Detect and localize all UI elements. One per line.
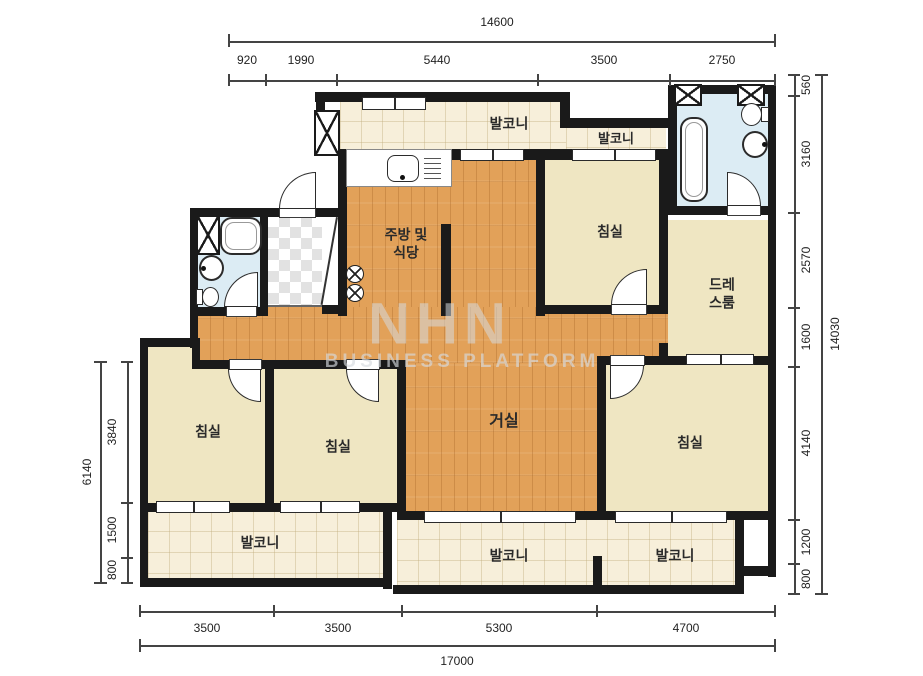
wall — [441, 224, 451, 316]
duct-x-icon — [674, 84, 702, 106]
dressroom-line2: 스룸 — [709, 294, 735, 312]
wall — [272, 360, 347, 369]
entrance-floor — [268, 216, 322, 306]
room-label-balcony-bottom-left: 발코니 — [241, 534, 280, 552]
wall — [768, 85, 776, 577]
room-label-balcony-top-right: 발코니 — [598, 131, 634, 147]
dim-right-seg: 3160 — [799, 141, 813, 168]
dim-bottom-seg: 3500 — [194, 621, 221, 635]
kitchen-line2: 식당 — [385, 244, 428, 262]
wall — [597, 356, 606, 520]
dim-top-seg: 2750 — [709, 53, 736, 67]
kitchen-line1: 주방 및 — [385, 227, 428, 245]
dim-left-total: 6140 — [80, 459, 94, 486]
wall — [735, 520, 744, 594]
dim-top-seg: 5440 — [424, 53, 451, 67]
wall — [646, 305, 668, 314]
room-label-balcony-bottom-mid: 발코니 — [490, 547, 529, 565]
wall — [140, 578, 390, 587]
wall — [200, 360, 231, 369]
toilet-icon — [741, 103, 762, 126]
window — [156, 501, 230, 513]
washbasin-faucet — [201, 266, 206, 271]
dim-left-seg: 3840 — [105, 419, 119, 446]
dimension-line — [794, 75, 796, 594]
wall — [315, 208, 342, 217]
room-label-bedroom-mid: 침실 — [325, 438, 351, 456]
entrance-door-arc — [279, 172, 316, 209]
dim-bottom-seg: 5300 — [486, 621, 513, 635]
dim-right-seg: 800 — [799, 569, 813, 589]
room-label-dressroom: 드레 스룸 — [709, 277, 735, 312]
gas-range-icon — [346, 284, 364, 302]
dim-right-seg: 4140 — [799, 430, 813, 457]
wall — [393, 585, 743, 594]
wall — [192, 338, 200, 369]
dimension-line — [100, 362, 102, 583]
dim-left-seg: 1500 — [105, 517, 119, 544]
window — [424, 511, 576, 523]
dim-bottom-seg: 4700 — [673, 621, 700, 635]
window — [280, 501, 360, 513]
wall — [536, 305, 612, 314]
dim-top-seg: 1990 — [288, 53, 315, 67]
window — [615, 511, 727, 523]
wall — [737, 566, 776, 576]
dim-left-seg: 800 — [105, 560, 119, 580]
wall — [536, 149, 545, 316]
dim-right-seg: 2570 — [799, 247, 813, 274]
wall — [659, 149, 668, 312]
door-threshold — [226, 306, 257, 317]
wall — [322, 305, 342, 314]
wall — [193, 307, 227, 316]
room-label-bedroom-left: 침실 — [195, 423, 221, 441]
dimension-line — [140, 611, 775, 613]
wall — [397, 360, 406, 520]
dim-right-seg: 1600 — [799, 324, 813, 351]
dim-bottom-seg: 3500 — [325, 621, 352, 635]
wall — [265, 360, 274, 512]
dimension-line — [127, 362, 129, 583]
dim-top-total: 14600 — [480, 15, 513, 29]
wall — [140, 338, 148, 587]
window — [460, 149, 524, 161]
dim-bottom-total: 17000 — [440, 654, 473, 668]
dish-rack-icon — [424, 158, 441, 179]
wall — [256, 307, 268, 316]
room-label-bedroom-right: 침실 — [677, 434, 703, 452]
dimension-line — [229, 41, 775, 43]
duct-x-icon — [196, 215, 220, 255]
gas-range-icon — [346, 265, 364, 283]
window — [686, 354, 754, 365]
room-label-bedroom-top: 침실 — [597, 223, 623, 241]
floor-plan: 발코니 발코니 침실 드레 스룸 주방 및 식당 거실 침실 침실 침실 발코니… — [0, 0, 923, 676]
door-threshold — [727, 205, 761, 216]
dimension-line — [140, 645, 775, 647]
room-label-living: 거실 — [489, 412, 518, 432]
wall — [593, 556, 602, 594]
wall — [140, 338, 200, 347]
dimension-line — [821, 75, 823, 594]
toilet-icon — [202, 287, 219, 307]
door-threshold — [611, 304, 647, 315]
dim-top-seg: 920 — [237, 53, 257, 67]
living-room-floor — [402, 363, 605, 520]
bathtub-icon — [220, 217, 262, 255]
wall — [760, 206, 776, 215]
dressroom-line1: 드레 — [709, 277, 735, 295]
room-label-balcony-top-main: 발코니 — [490, 115, 529, 133]
duct-x-icon — [314, 110, 340, 156]
dim-top-seg: 3500 — [591, 53, 618, 67]
dim-right-seg: 560 — [799, 75, 813, 95]
wall — [644, 356, 668, 365]
dim-right-total: 14030 — [828, 317, 842, 350]
kitchen-faucet — [400, 175, 405, 180]
wall — [315, 92, 568, 102]
wall — [560, 118, 672, 128]
room-label-kitchen: 주방 및 식당 — [385, 227, 428, 262]
window — [362, 97, 426, 110]
floor-transition-line — [268, 305, 322, 307]
room-label-balcony-bottom-right: 발코니 — [656, 547, 695, 565]
dimension-line — [229, 80, 775, 82]
bathtub-icon — [680, 117, 708, 202]
dim-right-seg: 1200 — [799, 529, 813, 556]
washbasin-faucet — [762, 142, 767, 147]
window — [572, 149, 656, 161]
bedroom-left-floor-a — [148, 347, 196, 507]
wall — [668, 206, 728, 215]
wall — [560, 92, 570, 126]
toilet-icon — [761, 107, 769, 122]
